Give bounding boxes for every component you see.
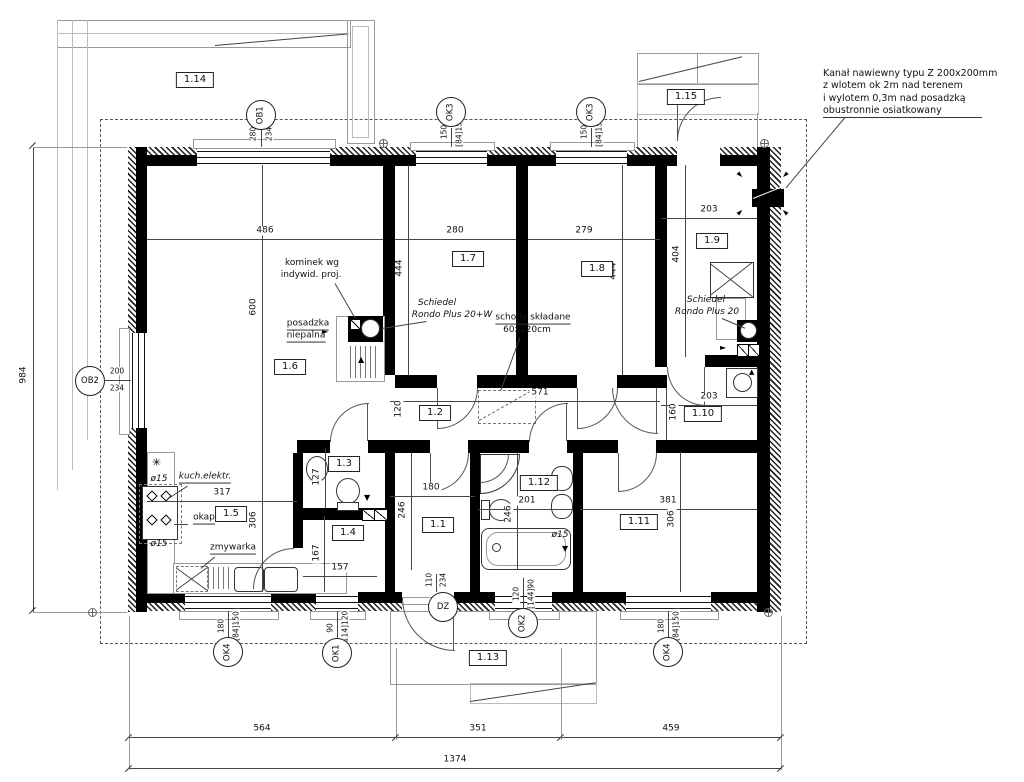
dimline-127 [325, 448, 326, 508]
marker-ok1: OK1 [322, 638, 352, 668]
dimline-bottom-1 [129, 737, 781, 738]
window-ok3a-symbol [416, 151, 487, 164]
wall-bottom-2 [271, 592, 316, 611]
dim-306s: 306 [668, 508, 677, 529]
fireplace-arrow-up-icon: ▲ [358, 356, 364, 364]
room-label-1-3: 1.3 [328, 456, 360, 472]
room-label-1-2: 1.2 [419, 405, 451, 421]
dim-203-110: 203 [698, 393, 719, 402]
toilet-tank-13 [337, 502, 359, 511]
axis-mark-4 [764, 608, 773, 617]
toilet-bowl-13 [336, 478, 360, 504]
dimext-br [781, 616, 782, 770]
mdim-ok2-2: [144]90 [527, 577, 535, 611]
dim-280: 280 [444, 227, 465, 236]
chimney-vent-square-2b [748, 344, 760, 357]
window-ok4b-sill [620, 611, 719, 620]
sink-drainboard [208, 567, 232, 589]
marker-ok4b: OK4 [653, 637, 683, 667]
mline-ob1 [261, 130, 262, 147]
dimline-246l [411, 453, 412, 570]
hall-bottom-wall-4 [567, 440, 618, 453]
tick-8 [29, 607, 36, 614]
dishwasher-note: zmywarka [210, 544, 256, 555]
dimline-317 [147, 501, 297, 502]
terrace-114-edge-2 [72, 20, 73, 470]
hall-top-wall-3 [617, 375, 667, 388]
window-ok4a-sill [179, 611, 279, 620]
dim-127: 127 [313, 466, 322, 487]
dimline-201 [478, 509, 573, 510]
appliance-symbol-icon: ✳ [152, 457, 161, 468]
dimline-280 [395, 239, 516, 240]
dimext-984-bottom [33, 612, 127, 613]
room-label-1-4: 1.4 [332, 525, 364, 541]
room-label-1-6: 1.6 [274, 359, 306, 375]
vent-shaft-box-2 [374, 509, 388, 521]
mdim-dz-2: 234 [439, 571, 447, 589]
room-label-1-7: 1.7 [452, 251, 484, 267]
dim-246r: 246 [505, 503, 514, 524]
porch-115-side-left [637, 113, 638, 147]
dim-120: 120 [395, 398, 404, 419]
door-leaf-18 [577, 388, 578, 428]
dimline-bottom-2 [129, 768, 781, 769]
chimney1-note-line2: Rondo Plus 20+W [412, 311, 493, 321]
axis-mark-3 [88, 608, 97, 617]
door-ob1-symbol [197, 151, 330, 164]
pipe-arrow-down-icon: ▼ [562, 545, 568, 553]
window-ok3b-sill [550, 142, 635, 151]
dimline-306k [262, 449, 263, 592]
dim-984: 984 [20, 364, 29, 385]
mline-ob2 [105, 380, 131, 381]
terrace-114-column-inner [352, 26, 369, 138]
room-label-1-12: 1.12 [520, 475, 558, 491]
marker-ob2: OB2 [75, 366, 105, 396]
floor-note-line1: posadzka [287, 320, 329, 331]
wall-left-1 [128, 147, 147, 333]
hall-bottom-wall-3 [468, 440, 529, 453]
chimney2-note-line1: Schiedel [687, 296, 725, 306]
dimline-160 [666, 388, 667, 440]
dimline-571 [390, 401, 660, 402]
room-label-1-9: 1.9 [696, 233, 728, 249]
wall-112-111 [573, 453, 583, 592]
dim-444l: 444 [396, 257, 405, 278]
stairs-note-line2: 60x120cm [503, 326, 551, 336]
bathtub-drain [492, 543, 501, 552]
dimext-b2 [561, 648, 562, 740]
room-label-1-14: 1.14 [176, 72, 214, 88]
mdim-ok4b-1: 180 [657, 617, 665, 635]
vent-note-line2: z wlotem ok 2m nad terenem [823, 80, 997, 92]
wall-bottom-3 [358, 592, 402, 611]
vent-note-line3: i wylotem 0,3m nad posadzką [823, 93, 997, 105]
marker-dz: DZ [428, 592, 458, 622]
room-label-1-8: 1.8 [581, 261, 613, 277]
door-leaf-110-hall [656, 388, 657, 433]
floor-plan: ▲ ► ▲ ► ► ► ► ✳ ▼ ▲ ▼ [0, 0, 1024, 782]
dim-459: 459 [660, 725, 681, 734]
mline-ok2 [523, 578, 524, 608]
stairs-note-line1: schody składane [495, 314, 570, 325]
room-label-1-11: 1.11 [620, 514, 658, 530]
dim-381: 381 [657, 497, 678, 506]
mline-dz [436, 574, 437, 592]
dim-157: 157 [329, 564, 350, 573]
marker-ok4a: OK4 [213, 637, 243, 667]
washer-arrow-up-icon: ▲ [749, 369, 754, 376]
vent-note-line4: obustronnie osiatkowany [823, 105, 982, 118]
dim-1374: 1374 [442, 756, 469, 765]
pipe15-label-b: ø15 [151, 540, 168, 550]
marker-ok2: OK2 [508, 608, 538, 638]
window-ok3b-symbol [556, 151, 627, 164]
dimline-444r [622, 165, 623, 375]
terrace-114-edge-1 [57, 20, 58, 490]
terrace-113-step [470, 683, 597, 704]
mdim-ok2-1: 120 [512, 585, 520, 603]
dim-201: 201 [516, 497, 537, 506]
wall-right-2 [757, 206, 781, 612]
dimline-180 [390, 496, 475, 497]
dimline-157 [303, 576, 377, 577]
door-leaf-112 [566, 403, 567, 441]
mline-ok3a [451, 128, 452, 147]
dim-351: 351 [467, 725, 488, 734]
mline-ok3b [591, 128, 592, 147]
cooker-note: kuch.elektr. [179, 473, 231, 484]
mdim-ok1-1: 90 [326, 621, 334, 635]
window-ok1-symbol [316, 596, 358, 609]
window-ok4b-symbol [626, 596, 711, 609]
chimney2-note-line2: Rondo Plus 20 [675, 308, 739, 318]
mdim-ob2-2: 234 [108, 384, 126, 392]
dim-486: 486 [254, 227, 275, 236]
chimney-flue-2 [740, 322, 757, 339]
floor-note-line2: niepalna [287, 332, 326, 343]
room-label-1-5: 1.5 [215, 506, 247, 522]
marker-ok3b: OK3 [576, 97, 606, 127]
door-ob2-sill [119, 328, 130, 435]
dim-404: 404 [673, 243, 682, 264]
terrace-114-band [57, 20, 351, 48]
chimney1-note-line1: Schiedel [418, 299, 456, 309]
dim-317: 317 [211, 489, 232, 498]
dim-246l: 246 [399, 499, 408, 520]
fireplace-note-line2: indywid. proj. [281, 271, 342, 281]
axis-mark-2 [760, 139, 769, 148]
dimline-246r [517, 453, 518, 570]
dim-279: 279 [573, 227, 594, 236]
door-leaf-13 [367, 403, 368, 441]
chimney-vent-square-1 [350, 319, 361, 330]
dimext-b1 [396, 648, 397, 740]
window-ok1-sill [310, 611, 366, 620]
exhaust-arrow-down-icon: ▼ [364, 494, 370, 502]
wall-bottom-5 [552, 592, 626, 611]
dim-203-19: 203 [698, 206, 719, 215]
dimline-404 [685, 165, 686, 357]
dimline-600 [262, 165, 263, 449]
dim-167: 167 [313, 542, 322, 563]
hood-leader [174, 524, 188, 525]
door-leaf-111 [618, 453, 619, 491]
dimline-203-19 [661, 218, 757, 219]
porch-115-step-upper [637, 53, 759, 85]
wall-top-2 [330, 147, 416, 166]
door-ob2-symbol [132, 333, 145, 428]
hall-bottom-wall-2 [368, 440, 430, 453]
axis-mark-1 [379, 139, 388, 148]
wall-11-112 [470, 453, 480, 592]
chimney-flue-1 [361, 319, 380, 338]
wall-bottom-4 [454, 592, 495, 611]
fireplace-floor-stripes [350, 346, 380, 378]
dimline-486 [147, 239, 383, 240]
dimline-444l [408, 165, 409, 375]
dimline-279 [528, 239, 660, 240]
washbasin-112b [551, 494, 573, 519]
hall-bottom-wall-5 [656, 440, 757, 453]
dimext-984-top [33, 147, 127, 148]
dimline-306s [680, 452, 681, 592]
wall-top-3 [487, 147, 556, 166]
wall-13-11 [385, 453, 395, 592]
window-ok3a-sill [410, 142, 495, 151]
dim-564: 564 [251, 725, 272, 734]
vent-note: Kanał nawiewny typu Z 200x200mm z wlotem… [823, 68, 997, 118]
folding-stairs-outline [478, 390, 536, 424]
marker-ob1: OB1 [246, 100, 276, 130]
dim-600: 600 [250, 296, 259, 317]
pipe15-label-a: ø15 [151, 475, 168, 485]
mdim-ok4a-1: 180 [217, 617, 225, 635]
window-ok4a-symbol [185, 596, 271, 609]
dim-306k: 306 [250, 509, 259, 530]
vent-note-line1: Kanał nawiewny typu Z 200x200mm [823, 68, 997, 80]
dim-571: 571 [529, 389, 550, 398]
wall-18-19 [655, 165, 667, 367]
hall-top-wall-2 [477, 375, 577, 388]
wall-right-1 [757, 147, 781, 190]
room-label-1-15: 1.15 [667, 89, 705, 105]
pipe15-label-c: ø15 [552, 531, 569, 541]
fireplace-note-line1: kominek wg [285, 259, 339, 269]
terrace-114-midline [58, 33, 348, 34]
dimline-984 [33, 147, 34, 612]
hall-top-wall-1 [395, 375, 437, 388]
dim-180: 180 [420, 484, 441, 493]
mdim-dz-1: 110 [425, 571, 433, 589]
tick-6 [777, 765, 784, 772]
room-label-1-10: 1.10 [684, 406, 722, 422]
hood-note: okap [193, 514, 215, 525]
porch-115-side-right [757, 113, 758, 147]
room-label-1-1: 1.1 [422, 517, 454, 533]
dimline-167 [324, 516, 325, 592]
dimext-bl [129, 616, 130, 770]
chimney-arrow-right-icon: ► [720, 344, 726, 352]
marker-ok3a: OK3 [436, 97, 466, 127]
dim-160: 160 [670, 401, 679, 422]
mdim-ob2-1: 200 [108, 367, 126, 375]
room-label-1-13: 1.13 [469, 650, 507, 666]
